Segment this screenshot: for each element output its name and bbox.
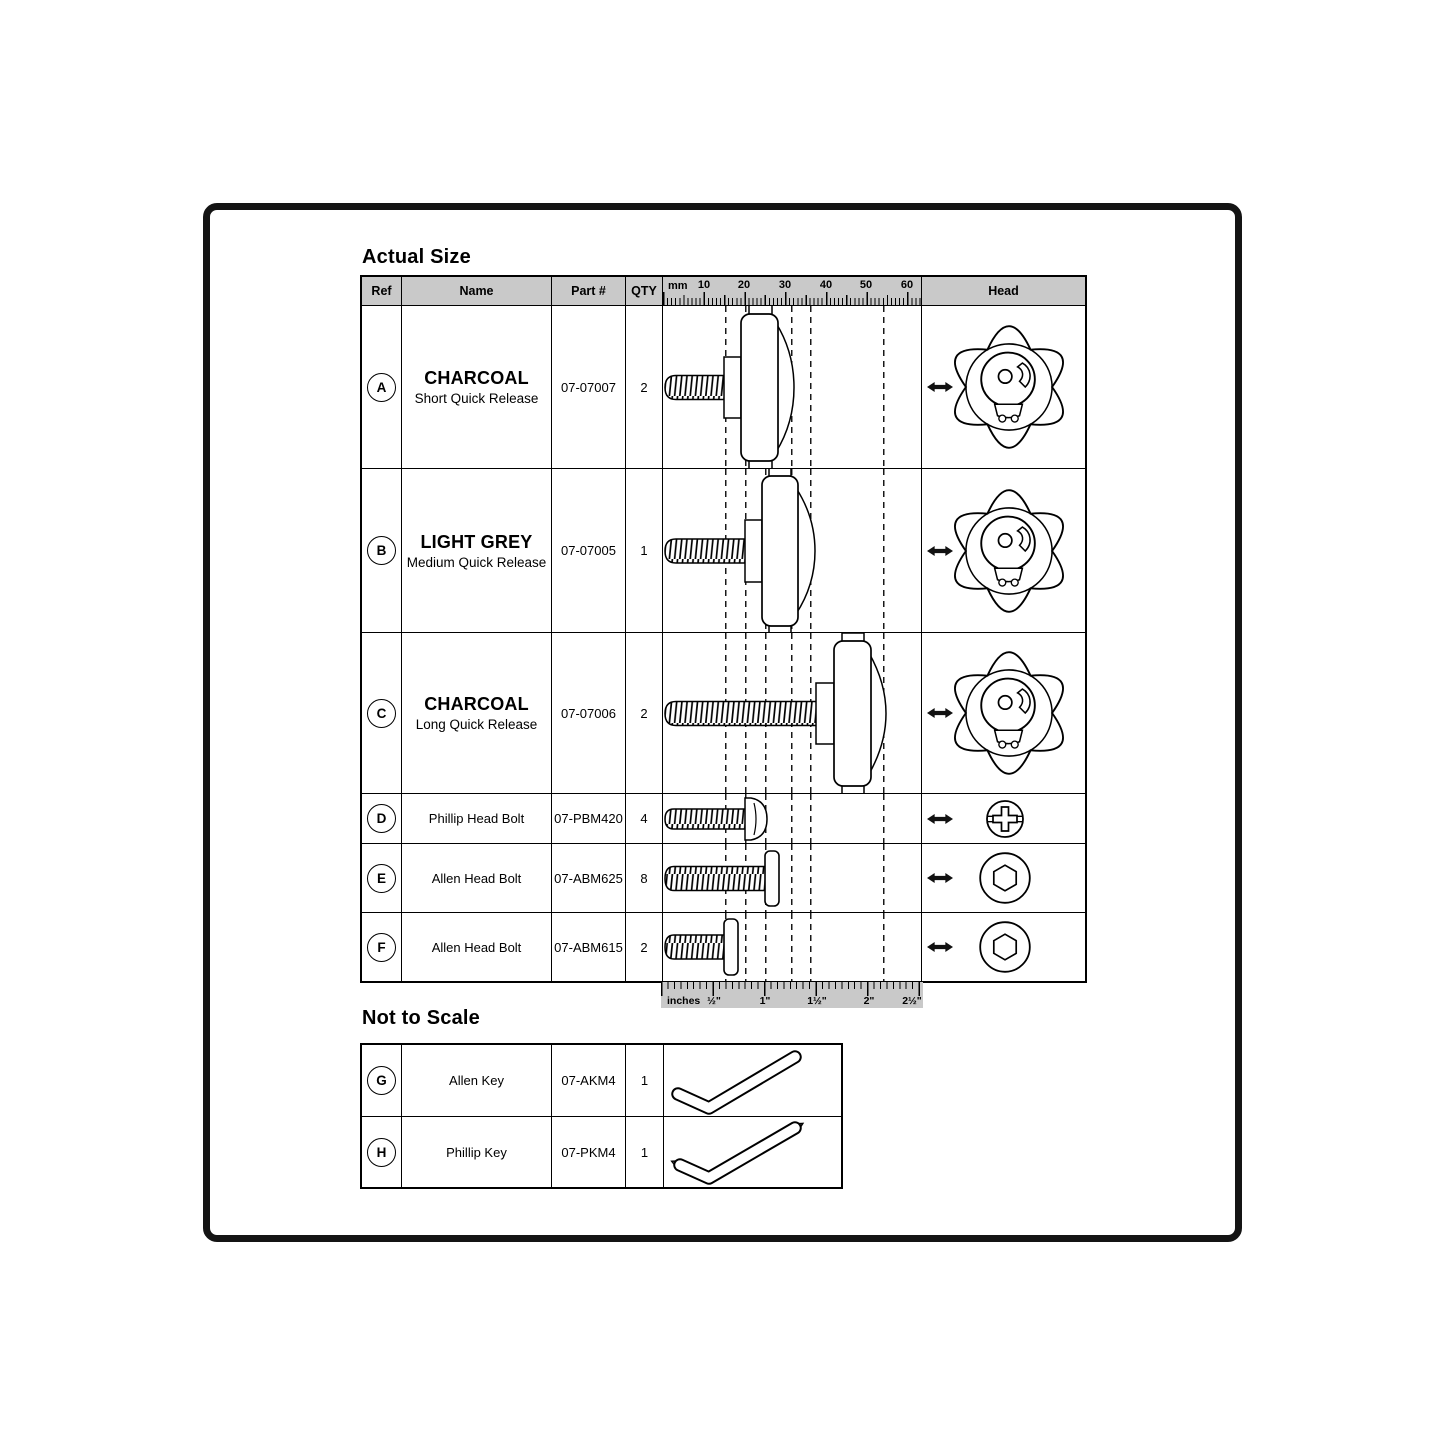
qty-cell: 1 [626, 1045, 664, 1117]
name-cell: Phillip Head Bolt [402, 794, 552, 844]
name-cell: Phillip Key [402, 1117, 552, 1187]
not-to-scale-table: G Allen Key 07-AKM4 1 H Phillip Key 07-P… [360, 1043, 843, 1189]
part-name: CHARCOAL [424, 694, 529, 715]
part-number-cell: 07-PKM4 [552, 1117, 626, 1187]
ref-badge-h: H [367, 1138, 396, 1167]
qty-cell: 1 [626, 1117, 664, 1187]
parts-sheet: Actual Size Ref Name Part # QTY mm 10 20… [0, 0, 1445, 1445]
diagram-cell [663, 633, 922, 794]
double-arrow-icon [927, 872, 953, 885]
inches-ruler: inches ½" 1" 1½" 2" 2½" [661, 982, 923, 1008]
phillips-head-top-icon [985, 799, 1025, 839]
mm-ruler-label: 10 [698, 279, 710, 291]
part-subname: Long Quick Release [416, 717, 538, 732]
mm-ruler-label: 60 [901, 279, 913, 291]
inches-ruler-label: 1" [760, 995, 771, 1007]
mm-ruler: mm 10 20 30 40 50 60 [663, 277, 922, 306]
allen-key-icon [664, 1045, 841, 1117]
part-number-cell: 07-07005 [552, 469, 626, 633]
ref-cell: H [362, 1117, 402, 1187]
mm-ruler-ticks [663, 292, 921, 305]
actual-size-title: Actual Size [362, 246, 471, 269]
part-name: Allen Head Bolt [432, 871, 522, 886]
head-cell [922, 633, 1085, 794]
part-number-cell: 07-AKM4 [552, 1045, 626, 1117]
short-quick-release-side-icon [663, 306, 922, 469]
star-knob-icon [942, 646, 1076, 780]
name-cell: LIGHT GREY Medium Quick Release [402, 469, 552, 633]
inches-ruler-unit: inches [667, 995, 700, 1007]
part-subname: Short Quick Release [415, 391, 539, 406]
head-cell [922, 794, 1085, 844]
header-cell-qty: QTY [626, 277, 663, 306]
header-cell-head: Head [922, 277, 1085, 306]
ref-cell: A [362, 306, 402, 469]
phillips-bolt-side-icon [663, 794, 922, 844]
part-subname: Medium Quick Release [407, 555, 547, 570]
part-name: Phillip Key [446, 1145, 507, 1160]
inches-ruler-label: 1½" [807, 995, 827, 1007]
part-name: Phillip Head Bolt [429, 811, 524, 826]
part-number-cell: 07-07006 [552, 633, 626, 794]
header-cell-part: Part # [552, 277, 626, 306]
name-cell: Allen Key [402, 1045, 552, 1117]
header-cell-name: Name [402, 277, 552, 306]
diagram-cell [663, 794, 922, 844]
header-cell-ref: Ref [362, 277, 402, 306]
name-cell: Allen Head Bolt [402, 913, 552, 981]
name-cell: Allen Head Bolt [402, 844, 552, 913]
ref-cell: E [362, 844, 402, 913]
ref-cell: C [362, 633, 402, 794]
allen-bolt-side-icon [663, 844, 922, 913]
name-cell: CHARCOAL Short Quick Release [402, 306, 552, 469]
qty-cell: 4 [626, 794, 663, 844]
ref-cell: G [362, 1045, 402, 1117]
part-name: LIGHT GREY [420, 532, 532, 553]
qty-cell: 2 [626, 306, 663, 469]
long-quick-release-side-icon [663, 633, 922, 794]
part-number-cell: 07-ABM615 [552, 913, 626, 981]
phillips-key-icon [664, 1117, 841, 1187]
head-cell [922, 306, 1085, 469]
actual-size-table: Ref Name Part # QTY mm 10 20 30 40 50 60… [360, 275, 1087, 983]
ref-badge-e: E [367, 864, 396, 893]
head-cell [922, 469, 1085, 633]
ref-badge-f: F [367, 933, 396, 962]
inches-ruler-ticks [661, 982, 923, 996]
mm-ruler-unit: mm [668, 280, 688, 292]
diagram-cell [663, 306, 922, 469]
inches-ruler-label: 2½" [902, 995, 922, 1007]
ref-cell: D [362, 794, 402, 844]
part-number-cell: 07-ABM625 [552, 844, 626, 913]
diagram-cell [663, 469, 922, 633]
ref-badge-d: D [367, 804, 396, 833]
double-arrow-icon [927, 941, 953, 954]
ref-badge-a: A [367, 373, 396, 402]
part-name: CHARCOAL [424, 368, 529, 389]
ref-cell: F [362, 913, 402, 981]
medium-quick-release-side-icon [663, 469, 922, 633]
qty-cell: 1 [626, 469, 663, 633]
diagram-cell [663, 844, 922, 913]
ref-badge-b: B [367, 536, 396, 565]
ref-badge-c: C [367, 699, 396, 728]
part-name: Allen Head Bolt [432, 940, 522, 955]
part-name: Allen Key [449, 1073, 504, 1088]
diagram-cell [663, 913, 922, 981]
star-knob-icon [942, 320, 1076, 454]
head-cell [922, 844, 1085, 913]
star-knob-icon [942, 484, 1076, 618]
mm-ruler-label: 30 [779, 279, 791, 291]
head-cell [922, 913, 1085, 981]
qty-cell: 2 [626, 633, 663, 794]
mm-ruler-label: 40 [820, 279, 832, 291]
ref-cell: B [362, 469, 402, 633]
allen-bolt-side-icon [663, 913, 922, 981]
double-arrow-icon [927, 812, 953, 825]
hex-socket-top-icon [978, 920, 1032, 974]
tool-cell [664, 1117, 841, 1187]
qty-cell: 8 [626, 844, 663, 913]
name-cell: CHARCOAL Long Quick Release [402, 633, 552, 794]
mm-ruler-label: 50 [860, 279, 872, 291]
hex-socket-top-icon [978, 851, 1032, 905]
tool-cell [664, 1045, 841, 1117]
part-number-cell: 07-07007 [552, 306, 626, 469]
inches-ruler-label: 2" [864, 995, 875, 1007]
not-to-scale-title: Not to Scale [362, 1007, 480, 1030]
qty-cell: 2 [626, 913, 663, 981]
inches-ruler-label: ½" [707, 995, 721, 1007]
mm-ruler-label: 20 [738, 279, 750, 291]
part-number-cell: 07-PBM420 [552, 794, 626, 844]
ref-badge-g: G [367, 1066, 396, 1095]
